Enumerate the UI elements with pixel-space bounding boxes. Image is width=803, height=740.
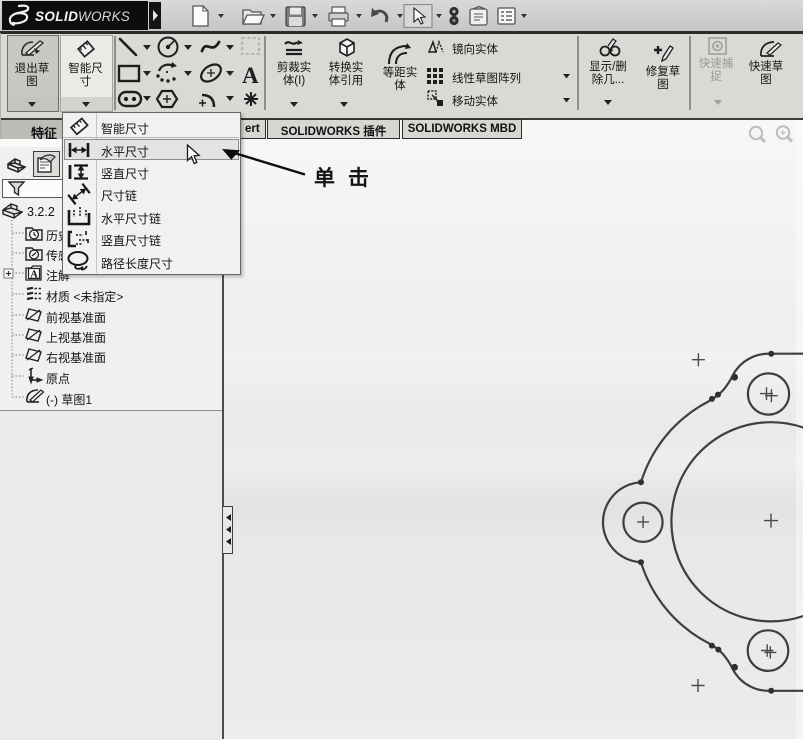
svg-text:A: A xyxy=(30,270,38,281)
svg-text:WORKS: WORKS xyxy=(78,9,130,24)
svg-text:SOLID: SOLID xyxy=(35,9,78,24)
svg-text:A: A xyxy=(242,63,259,88)
